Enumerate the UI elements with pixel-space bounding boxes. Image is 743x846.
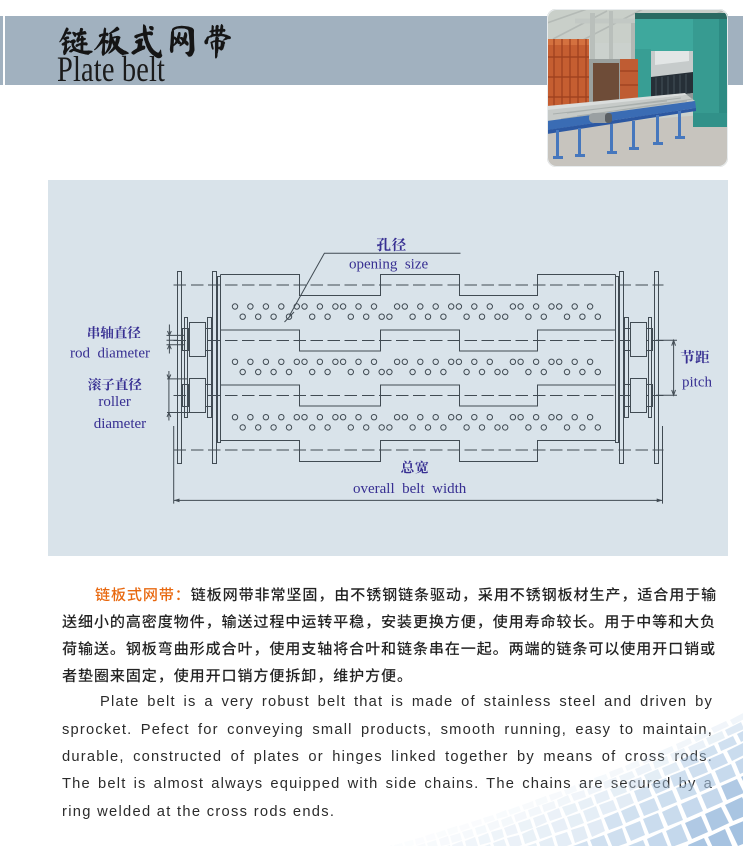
svg-text:overall belt width: overall belt width [353,481,467,497]
svg-text:pitch: pitch [682,375,712,391]
svg-text:diameter: diameter [94,416,146,432]
svg-text:roller: roller [98,394,130,410]
svg-text:opening size: opening size [349,257,428,273]
svg-text:rod diameter: rod diameter [70,345,150,361]
